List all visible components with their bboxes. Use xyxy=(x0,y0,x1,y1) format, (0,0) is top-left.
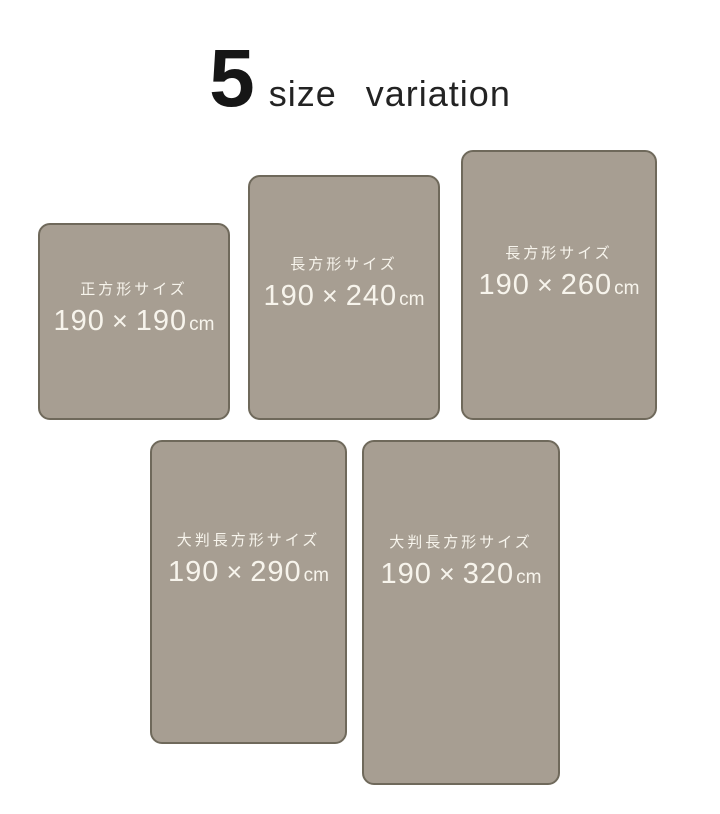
size-card-190x290: 大判長方形サイズ 190×290cm xyxy=(150,440,347,744)
size-card-190x190: 正方形サイズ 190×190cm xyxy=(38,223,230,420)
dimension-height: 320 xyxy=(463,558,514,590)
dimension-width: 190 xyxy=(479,269,530,301)
multiply-sign: × xyxy=(537,271,554,301)
dimension-width: 190 xyxy=(54,305,105,337)
size-card-190x260: 長方形サイズ 190×260cm xyxy=(461,150,657,420)
dimension-width: 190 xyxy=(168,556,219,588)
size-card-dimensions: 190×290cm xyxy=(152,557,345,589)
size-card-text: 長方形サイズ 190×260cm xyxy=(463,242,655,302)
dimension-height: 240 xyxy=(346,280,397,312)
size-card-text: 正方形サイズ 190×190cm xyxy=(40,278,228,338)
size-card-dimensions: 190×190cm xyxy=(40,306,228,338)
size-card-190x240: 長方形サイズ 190×240cm xyxy=(248,175,440,420)
page-title: 5size variation xyxy=(0,38,720,120)
size-card-text: 長方形サイズ 190×240cm xyxy=(250,253,438,313)
size-count: 5 xyxy=(209,33,255,124)
title-label: size variation xyxy=(269,73,511,114)
size-card-dimensions: 190×320cm xyxy=(364,559,558,591)
multiply-sign: × xyxy=(439,560,456,590)
size-card-text: 大判長方形サイズ 190×290cm xyxy=(152,529,345,589)
size-variation-page: 5size variation 正方形サイズ 190×190cm 長方形サイズ … xyxy=(0,0,720,814)
size-card-label: 長方形サイズ xyxy=(250,253,438,274)
size-card-label: 正方形サイズ xyxy=(40,278,228,299)
dimension-width: 190 xyxy=(264,280,315,312)
size-card-dimensions: 190×240cm xyxy=(250,281,438,313)
size-card-text: 大判長方形サイズ 190×320cm xyxy=(364,531,558,591)
dimension-unit: cm xyxy=(304,565,329,586)
dimension-unit: cm xyxy=(614,278,639,299)
multiply-sign: × xyxy=(322,282,339,312)
size-card-dimensions: 190×260cm xyxy=(463,270,655,302)
dimension-height: 260 xyxy=(561,269,612,301)
multiply-sign: × xyxy=(226,558,243,588)
dimension-unit: cm xyxy=(399,289,424,310)
dimension-unit: cm xyxy=(516,567,541,588)
size-card-190x320: 大判長方形サイズ 190×320cm xyxy=(362,440,560,785)
dimension-unit: cm xyxy=(189,314,214,335)
dimension-height: 190 xyxy=(136,305,187,337)
size-card-label: 大判長方形サイズ xyxy=(152,529,345,550)
size-card-label: 長方形サイズ xyxy=(463,242,655,263)
size-card-label: 大判長方形サイズ xyxy=(364,531,558,552)
dimension-width: 190 xyxy=(381,558,432,590)
multiply-sign: × xyxy=(112,307,129,337)
dimension-height: 290 xyxy=(250,556,301,588)
